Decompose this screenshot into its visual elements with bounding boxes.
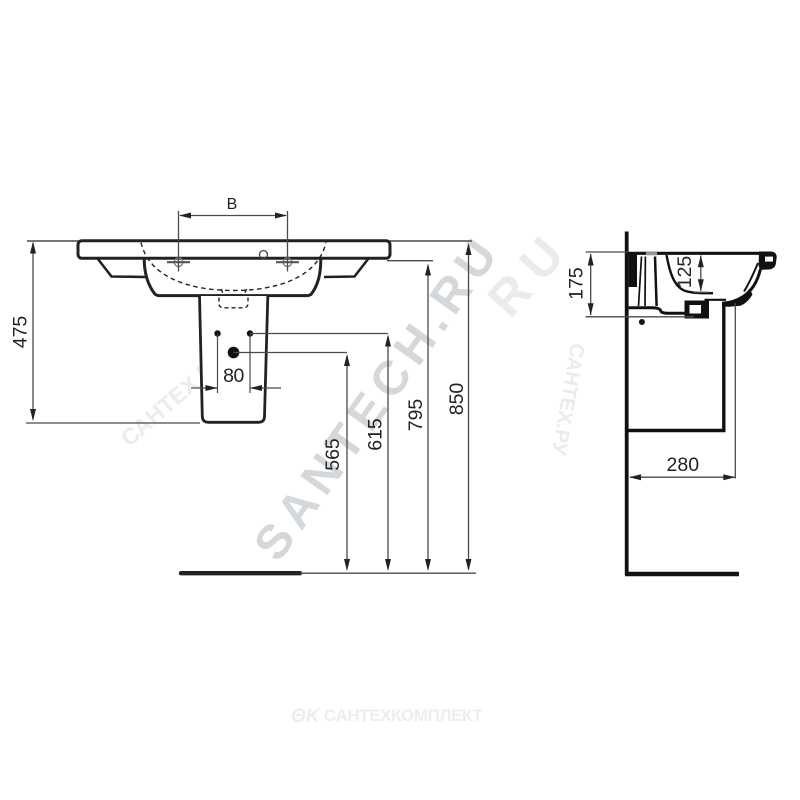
svg-text:615: 615 [365, 418, 387, 451]
svg-text:125: 125 [674, 256, 696, 289]
svg-text:САНТЕХКОМПЛЕКТ: САНТЕХКОМПЛЕКТ [324, 706, 483, 725]
svg-text:280: 280 [667, 454, 700, 476]
svg-text:475: 475 [10, 316, 32, 349]
svg-text:80: 80 [223, 365, 244, 387]
svg-text:B: B [227, 196, 238, 213]
svg-text:САНТЕХ.РУ: САНТЕХ.РУ [547, 342, 588, 457]
svg-text:175: 175 [566, 267, 588, 300]
svg-text:565: 565 [322, 438, 344, 471]
svg-text:ΘΚ: ΘΚ [291, 706, 321, 727]
svg-text:SANTECH.RU: SANTECH.RU [244, 225, 512, 571]
svg-text:795: 795 [405, 399, 427, 432]
svg-text:850: 850 [446, 383, 468, 416]
